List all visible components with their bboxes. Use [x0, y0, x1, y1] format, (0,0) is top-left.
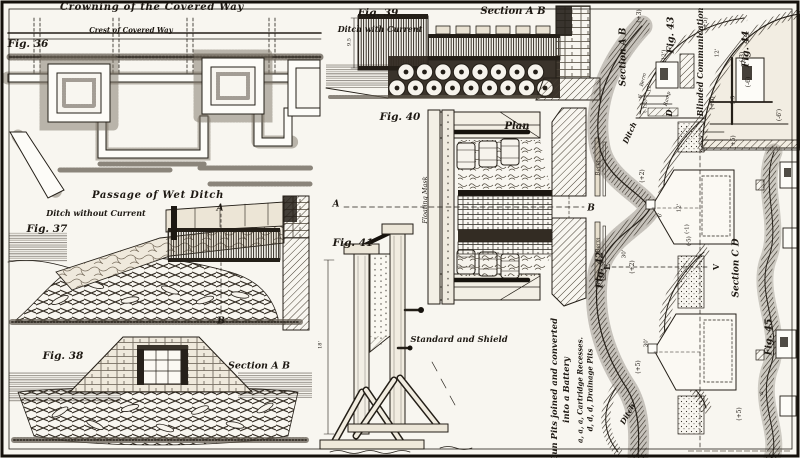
fig38-drawing [9, 337, 312, 445]
engraving-plate: Crowning of the Covered WayFig. 36Crest … [0, 0, 800, 458]
engraving-artwork [0, 0, 800, 458]
fig44-drawing [702, 14, 800, 150]
fig37-drawing [8, 196, 309, 330]
fig39-drawing [326, 6, 600, 100]
fig36-drawing [8, 18, 321, 198]
